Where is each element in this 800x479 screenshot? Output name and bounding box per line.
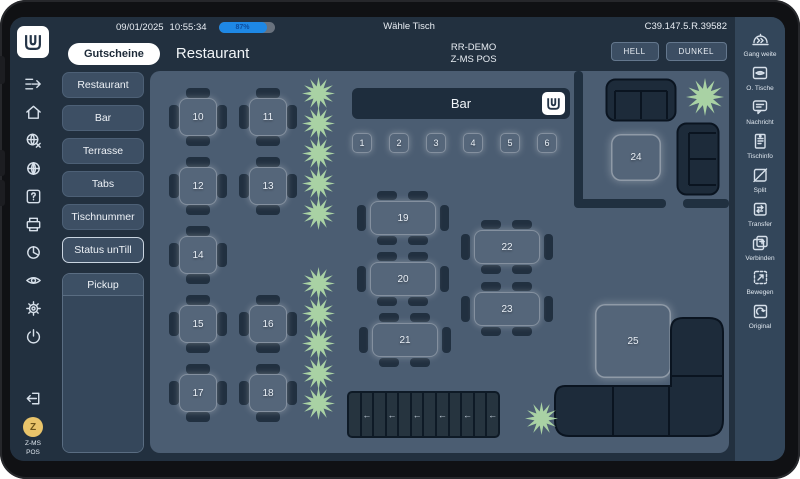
divider-slat: ← [462,393,473,436]
sofa-horizontal [605,78,677,122]
plant-icon [302,387,335,420]
pos-screen: Z Z-MS POS 09/01/2025 10:55:34 87% Wähle… [10,17,785,461]
table-24[interactable]: 24 [611,134,661,181]
help-icon[interactable] [20,183,46,209]
divider-slat: ← [362,393,373,436]
table-23-label: 23 [474,292,540,326]
right-tool-rail: Gang weite O. Tische Nachricht Tischinfo… [735,17,785,461]
station-label-line1: Z-MS [25,440,41,448]
screen-title: Wähle Tisch [383,21,435,32]
demo-station-line2: Z-MS POS [451,54,497,66]
center-column: 09/01/2025 10:55:34 87% Wähle Tisch C39.… [56,17,735,461]
left-arrow-icon: ← [413,410,422,420]
table-22-label: 22 [474,230,540,264]
divider-slat [424,393,435,436]
view-icon[interactable] [20,267,46,293]
bar-seat-1[interactable]: 1 [352,133,372,153]
divider-slat [374,393,385,436]
plant-icon [302,167,335,200]
menu-bar-button[interactable]: Bar [62,105,144,131]
table-17-label: 17 [179,374,217,412]
table-19[interactable]: 19 [357,191,449,245]
body-row: Restaurant Bar Terrasse Tabs Tischnummer… [56,69,735,461]
verbinden-button[interactable]: Verbinden [735,233,785,262]
area-menu: Restaurant Bar Terrasse Tabs Tischnummer… [56,69,148,461]
time-text: 10:55:34 [170,22,207,33]
bar-seat-2[interactable]: 2 [389,133,409,153]
printer-icon[interactable] [20,211,46,237]
original-label: Original [749,323,771,330]
tischinfo-button[interactable]: Tischinfo [735,131,785,160]
wall [574,71,583,207]
tablet-side-button [0,56,5,84]
sofa-l-shaped [551,314,727,441]
menu-terrasse-button[interactable]: Terrasse [62,138,144,164]
table-15-label: 15 [179,305,217,343]
table-20[interactable]: 20 [357,252,449,306]
o-tische-label: O. Tische [746,85,773,92]
menu-status-untill-button[interactable]: Status unTill [62,237,144,263]
divider-slat [450,393,461,436]
bar-seat-4[interactable]: 4 [463,133,483,153]
plant-icon [302,77,335,110]
bewegen-button[interactable]: Bewegen [735,267,785,296]
settings-icon[interactable] [20,295,46,321]
left-arrow-icon: ← [362,410,371,420]
pickup-panel-body [63,296,143,452]
table-16-label: 16 [249,305,287,343]
split-button[interactable]: Split [735,165,785,194]
table-10[interactable]: 10 [169,88,227,146]
table-17[interactable]: 17 [169,364,227,422]
bewegen-label: Bewegen [746,289,773,296]
bar-seat-5[interactable]: 5 [500,133,520,153]
table-18-label: 18 [249,374,287,412]
globe-offline-icon[interactable] [20,127,46,153]
tablet-volume-down-button [0,180,5,206]
logout-icon[interactable] [20,385,46,411]
tablet-volume-up-button [0,150,5,176]
bar-label: Bar [451,96,471,111]
date-text: 09/01/2025 [116,22,164,33]
power-icon[interactable] [20,323,46,349]
wall [683,199,729,208]
bar-counter[interactable]: Bar [352,88,570,119]
untill-logo [17,26,49,58]
nachricht-button[interactable]: Nachricht [735,97,785,126]
user-avatar[interactable]: Z [23,417,43,437]
table-14[interactable]: 14 [169,226,227,284]
theme-light-button[interactable]: HELL [611,42,659,61]
divider-slat: ← [437,393,448,436]
verbinden-label: Verbinden [745,255,774,262]
pickup-panel-header: Pickup [63,274,143,296]
bar-seat-3[interactable]: 3 [426,133,446,153]
bar-untill-logo [542,92,565,115]
left-arrow-icon: ← [388,410,397,420]
table-14-label: 14 [179,236,217,274]
table-21-label: 21 [372,323,438,357]
station-label: Z-MS POS [25,440,41,461]
transfer-label: Transfer [748,221,772,228]
transfer-button[interactable]: Transfer [735,199,785,228]
table-21[interactable]: 21 [359,313,451,367]
table-19-label: 19 [370,201,436,235]
page-title: Restaurant [176,45,249,62]
plant-icon [686,78,724,116]
wall [574,199,666,208]
divider-slat: ← [387,393,398,436]
station-label-line2: POS [25,449,41,457]
plant-icon [525,402,558,435]
left-arrow-icon: ← [438,410,447,420]
divider-slat: ← [487,393,498,436]
table-15[interactable]: 15 [169,295,227,353]
floor-plan: Bar 1 2 3 4 5 6 1 [150,71,729,453]
tischinfo-label: Tischinfo [747,153,773,160]
nachricht-label: Nachricht [746,119,773,126]
original-button[interactable]: Original [735,301,785,330]
plant-icon [302,357,335,390]
o-tische-button[interactable]: O. Tische [735,63,785,92]
demo-station-label: RR-DEMO Z-MS POS [451,42,497,66]
plant-icon [302,327,335,360]
queue-divider: ← ← ← ← ← ← [347,391,500,438]
table-18[interactable]: 18 [239,364,297,422]
table-11-label: 11 [249,98,287,136]
gang-weite-label: Gang weite [744,51,777,58]
table-11[interactable]: 11 [239,88,297,146]
table-12[interactable]: 12 [169,157,227,215]
order-flow-icon[interactable] [20,71,46,97]
divider-slat [399,393,410,436]
table-13[interactable]: 13 [239,157,297,215]
menu-tabs-button[interactable]: Tabs [62,171,144,197]
status-bar: 09/01/2025 10:55:34 87% Wähle Tisch C39.… [56,17,735,38]
divider-slat: ← [412,393,423,436]
plant-icon [302,137,335,170]
home-icon[interactable] [20,99,46,125]
terminal-code: C39.147.5.R.39582 [645,21,727,32]
header-bar: Gutscheine Restaurant RR-DEMO Z-MS POS H… [56,38,735,69]
table-23[interactable]: 23 [461,282,553,336]
reports-icon[interactable] [20,239,46,265]
theme-dark-button[interactable]: DUNKEL [666,42,727,61]
gang-weite-button[interactable]: Gang weite [735,29,785,58]
menu-restaurant-button[interactable]: Restaurant [62,72,144,98]
divider-slat [475,393,486,436]
bar-seat-6[interactable]: 6 [537,133,557,153]
menu-tischnummer-button[interactable]: Tischnummer [62,204,144,230]
table-22[interactable]: 22 [461,220,553,274]
table-12-label: 12 [179,167,217,205]
plant-icon [302,297,335,330]
globe-icon[interactable] [20,155,46,181]
table-20-label: 20 [370,262,436,296]
left-arrow-icon: ← [488,410,497,420]
split-label: Split [754,187,767,194]
left-arrow-icon: ← [463,410,472,420]
left-icon-rail: Z Z-MS POS [10,17,56,461]
gutscheine-button[interactable]: Gutscheine [68,43,160,65]
tablet-frame: Z Z-MS POS 09/01/2025 10:55:34 87% Wähle… [0,0,800,479]
demo-station-line1: RR-DEMO [451,42,497,54]
plant-icon [302,197,335,230]
divider-slat [349,393,360,436]
table-10-label: 10 [179,98,217,136]
battery-percent: 87% [219,22,267,33]
table-13-label: 13 [249,167,287,205]
pickup-panel[interactable]: Pickup [62,273,144,453]
plant-icon [302,267,335,300]
sofa-vertical [676,122,720,196]
theme-toggle-group: HELL DUNKEL [611,42,727,61]
table-16[interactable]: 16 [239,295,297,353]
plant-icon [302,107,335,140]
battery-indicator: 87% [219,22,275,33]
